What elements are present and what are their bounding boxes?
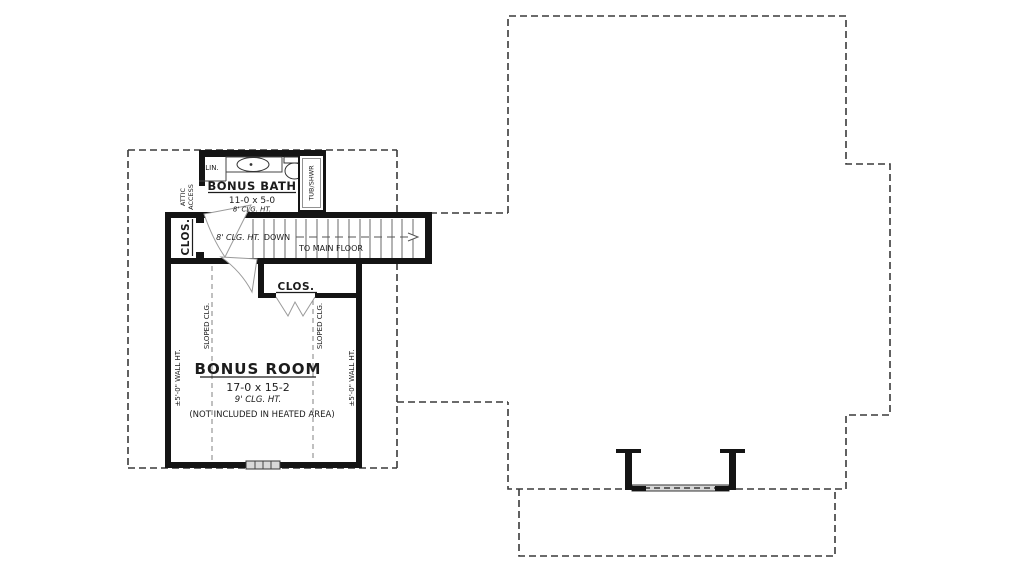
- sink-drain-icon: [250, 163, 253, 166]
- sink-icon: [237, 158, 269, 172]
- closet-left-wall-stub-top: [196, 212, 204, 223]
- wall-ht-left-label: ±5'-0" WALL HT.: [174, 350, 182, 407]
- main-floor-dashed-outline: [128, 16, 890, 556]
- dormer-right-stub: [715, 486, 729, 491]
- floor-plan-svg: BONUS BATH 11-0 x 5-0 8' CLG. HT. LIN. T…: [0, 0, 1024, 574]
- wall-ht-right-label: ±5'-0" WALL HT.: [348, 350, 356, 407]
- bath-clg: 8' CLG. HT.: [233, 206, 271, 214]
- hall-clg: 8' CLG. HT.: [216, 233, 260, 242]
- room-left-wall: [165, 212, 171, 468]
- dormer-left-post: [625, 449, 632, 490]
- room-title: BONUS ROOM: [195, 360, 322, 378]
- sloped-clg-left-label: SLOPED CLG.: [203, 303, 211, 349]
- attic-access-line1: ATTIC: [179, 187, 187, 206]
- stairs-right-wall: [425, 212, 432, 264]
- lower-closet-left-wall: [258, 258, 264, 298]
- bath-title: BONUS BATH: [207, 179, 296, 193]
- sloped-clg-right-label: SLOPED CLG.: [316, 303, 324, 349]
- lower-closet-bottom-wall-left: [258, 293, 276, 298]
- dormer: [616, 449, 745, 491]
- stairs-bottom-wall: [165, 258, 432, 264]
- tub-shower-label: TUB/SHWR: [308, 165, 316, 202]
- closet-left-label: CLOS.: [180, 219, 192, 256]
- region-connectors: [397, 213, 508, 402]
- hall-destination: TO MAIN FLOOR: [298, 244, 363, 253]
- right-region-outline: [508, 16, 890, 489]
- room-clg: 9' CLG. HT.: [235, 395, 281, 405]
- closet-bifold-doors: [276, 297, 315, 316]
- down-arrow: [296, 233, 418, 241]
- attic-access-line2: ACCESS: [187, 184, 195, 210]
- labels: BONUS BATH 11-0 x 5-0 8' CLG. HT. LIN. T…: [174, 164, 363, 420]
- closet-lower-label: CLOS.: [278, 281, 315, 293]
- room-note: (NOT INCLUDED IN HEATED AREA): [189, 410, 334, 420]
- dormer-left-stub: [632, 486, 646, 491]
- lower-closet-bottom-wall-right: [315, 293, 362, 298]
- floor-plan-page: BONUS BATH 11-0 x 5-0 8' CLG. HT. LIN. T…: [0, 0, 1024, 574]
- dormer-right-post: [729, 449, 736, 490]
- closet-left-wall-stub-bottom: [196, 252, 204, 264]
- room-dims: 17-0 x 15-2: [226, 381, 289, 394]
- bath-dims: 11-0 x 5-0: [229, 196, 275, 206]
- bonus-room-window: [246, 461, 280, 469]
- hall-down: DOWN: [264, 233, 290, 242]
- porch-extension-outline: [519, 489, 835, 556]
- room-right-wall: [356, 258, 362, 468]
- linen-label: LIN.: [205, 164, 218, 172]
